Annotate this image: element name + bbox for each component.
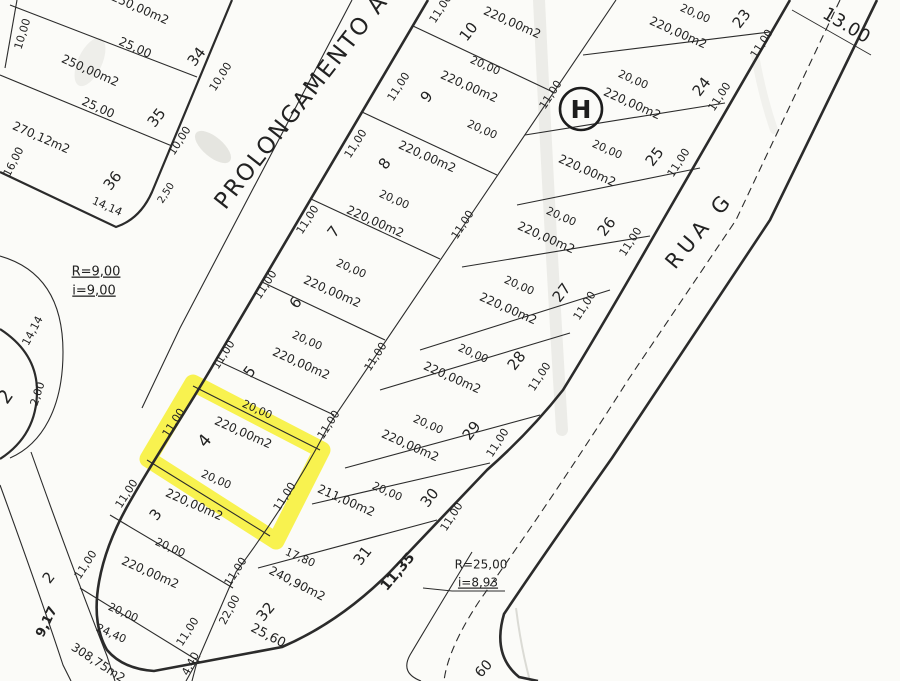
rear-dim-11-00-c: 11,00 [362, 340, 390, 373]
lot-23-depth: 20,00 [678, 1, 712, 26]
note-curve-r25: R=25,00 [455, 558, 508, 572]
scan-smudge [190, 125, 237, 169]
dim-11-00-lot32-rear: 11,00 [222, 555, 250, 588]
map-labels: PROLONGAMENTO ARUA G13.00R=9,00i=9,00R=2… [0, 0, 874, 681]
lot-24-number: 24 [689, 74, 715, 100]
lot-34-frontage-east: 10,00 [207, 60, 235, 93]
lot-2-area: 220,00m2 [119, 554, 181, 592]
dim-24-40: 24,40 [94, 621, 128, 646]
dim-2-00: 2,00 [28, 380, 48, 407]
dim-16-00: 16,00 [1, 145, 27, 179]
lot-6-number: 6 [286, 293, 306, 312]
lot-5-frontage: 11,00 [210, 338, 238, 371]
lot-36-number: 36 [100, 168, 126, 194]
dim-17-80: 17,80 [283, 545, 317, 570]
lot-31-number: 31 [350, 543, 376, 569]
lot-4-number: 4 [194, 430, 216, 451]
lot-8-frontage: 11,00 [342, 127, 370, 160]
lot-3-depth: 20,00 [153, 535, 187, 560]
lot-30-number: 30 [417, 485, 443, 511]
lot-30-depth: 20,00 [370, 479, 404, 504]
lot-34-frontage-west: 10,00 [12, 17, 34, 51]
lower-street-curb-2 [0, 485, 71, 681]
dim-14-14-corner: 14,14 [19, 314, 45, 348]
lot-23-number: 23 [729, 6, 755, 32]
lot-7-number: 7 [324, 222, 344, 241]
rear-dim-11-00-b: 11,00 [449, 208, 477, 241]
rear-dim-11-00-d: 11,00 [315, 408, 343, 441]
dim-9-17: 9,17 [33, 604, 61, 639]
lot-26-number: 26 [594, 214, 620, 240]
lot-6-frontage: 11,00 [252, 268, 280, 301]
lot-10-number: 10 [456, 19, 482, 45]
lot-24-depth: 20,00 [616, 67, 650, 92]
lot-9-frontage: 11,00 [385, 70, 413, 103]
lot-24-area: 220,00m2 [601, 85, 663, 123]
lot-8-area: 220,00m2 [396, 138, 458, 176]
lot-8-number: 8 [375, 154, 395, 173]
lot-10-depth: 20,00 [468, 53, 502, 78]
lot-7-area: 220,00m2 [344, 203, 406, 241]
lot-7-depth: 20,00 [334, 256, 368, 281]
scanned-plat-map-page: H PROLONGAMENTO ARUA G13.00R=9,00i=9,00R… [0, 0, 900, 681]
h-marker: H [560, 88, 602, 130]
dim-60-partial: 60 [472, 657, 496, 681]
lot-3-frontage: 11,00 [113, 477, 141, 510]
lot-34-depth: 25,00 [117, 34, 154, 61]
note-curve-i9: i=9,00 [72, 284, 115, 299]
street-name-rua-g: RUA G [660, 187, 738, 273]
lot-2-number: 2 [39, 568, 59, 587]
lot-28-area: 220,00m2 [421, 359, 483, 397]
fold-crease-2 [755, 55, 774, 130]
lot-35-depth: 25,00 [80, 94, 117, 121]
lot-8-depth: 20,00 [377, 187, 411, 212]
lot-2-depth: 20,00 [106, 600, 140, 625]
lot-25-depth: 20,00 [590, 137, 624, 162]
dim-11-00-lot1: 11,00 [174, 615, 202, 648]
plat-map: H PROLONGAMENTO ARUA G13.00R=9,00i=9,00R… [0, 0, 900, 681]
lot-9-depth: 20,00 [465, 117, 499, 142]
lot-27-depth: 20,00 [502, 273, 536, 298]
dim-22-00: 22,00 [216, 593, 242, 627]
dim-25-60: 25,60 [248, 621, 288, 651]
lot-5-number: 5 [240, 362, 260, 381]
page-edge-shadow [516, 608, 530, 681]
street-lines [0, 0, 877, 681]
lot-32-area: 240,90m2 [267, 563, 328, 603]
lot-9-number: 9 [417, 87, 437, 106]
lot-35-frontage: 10,00 [166, 124, 194, 157]
lot-5-area: 220,00m2 [270, 345, 332, 383]
lot-2-frontage: 11,00 [72, 548, 100, 581]
dim-2-50: 2,50 [156, 181, 177, 206]
note-curve-i893: i=8,93 [458, 576, 498, 590]
dim-14-14-block-a: 14,14 [90, 194, 124, 219]
lot-27-frontage: 11,00 [571, 289, 599, 322]
h-marker-letter: H [571, 95, 592, 124]
lot-26-frontage: 11,00 [617, 225, 645, 258]
lot-25-number: 25 [642, 144, 668, 170]
lot-3-number: 3 [146, 505, 166, 524]
note-curve-r9: R=9,00 [72, 265, 121, 280]
lot-34-area: 250,00m2 [109, 0, 171, 27]
lot-35-number: 35 [144, 105, 170, 131]
lot-31-frontage: 11,35 [378, 550, 419, 594]
lot-number-partial-2: 2 [0, 385, 18, 408]
block-frontage-line [97, 0, 790, 671]
lot-6-depth: 20,00 [290, 328, 324, 353]
corner-outer-curve [0, 256, 63, 458]
lot-29-depth: 20,00 [411, 412, 445, 437]
lot-23-frontage: 11,00 [748, 27, 776, 60]
block-a-frontage [0, 0, 232, 227]
lot-10-frontage: 11,00 [427, 0, 455, 25]
lot-29-frontage: 11,00 [484, 426, 512, 459]
lot-29-number: 29 [459, 418, 485, 444]
lot-28-frontage: 11,00 [526, 360, 554, 393]
